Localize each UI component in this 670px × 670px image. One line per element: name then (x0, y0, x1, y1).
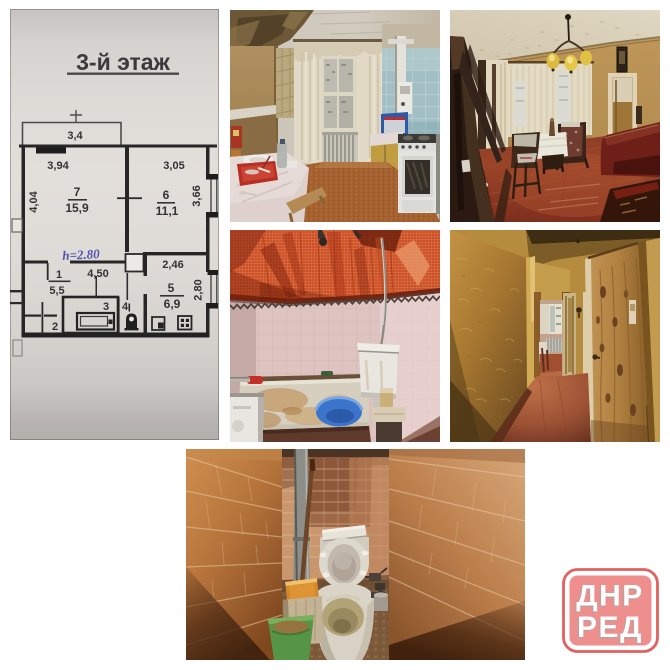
svg-text:1: 1 (56, 269, 62, 281)
svg-text:3,66: 3,66 (191, 185, 203, 206)
svg-text:3,94: 3,94 (47, 160, 69, 172)
svg-text:11,1: 11,1 (156, 204, 179, 218)
svg-text:h=2.80: h=2.80 (62, 246, 101, 263)
svg-text:4,04: 4,04 (28, 190, 40, 212)
svg-text:2,46: 2,46 (162, 259, 183, 271)
svg-text:3,05: 3,05 (163, 160, 184, 172)
svg-text:15,9: 15,9 (65, 201, 89, 215)
svg-text:ДНР: ДНР (576, 580, 644, 613)
svg-text:6: 6 (163, 188, 170, 202)
svg-text:6,9: 6,9 (164, 297, 181, 311)
svg-text:3: 3 (103, 301, 109, 313)
svg-text:2: 2 (52, 321, 58, 333)
svg-text:7: 7 (74, 185, 81, 199)
svg-text:4: 4 (122, 301, 129, 313)
svg-text:3-й этаж: 3-й этаж (76, 49, 170, 75)
svg-text:5,5: 5,5 (49, 285, 64, 297)
svg-text:3,4: 3,4 (67, 130, 83, 142)
svg-text:РЕД: РЕД (577, 611, 643, 644)
svg-text:4,50: 4,50 (87, 268, 108, 280)
svg-text:2,80: 2,80 (193, 279, 205, 300)
svg-text:5: 5 (168, 281, 175, 295)
